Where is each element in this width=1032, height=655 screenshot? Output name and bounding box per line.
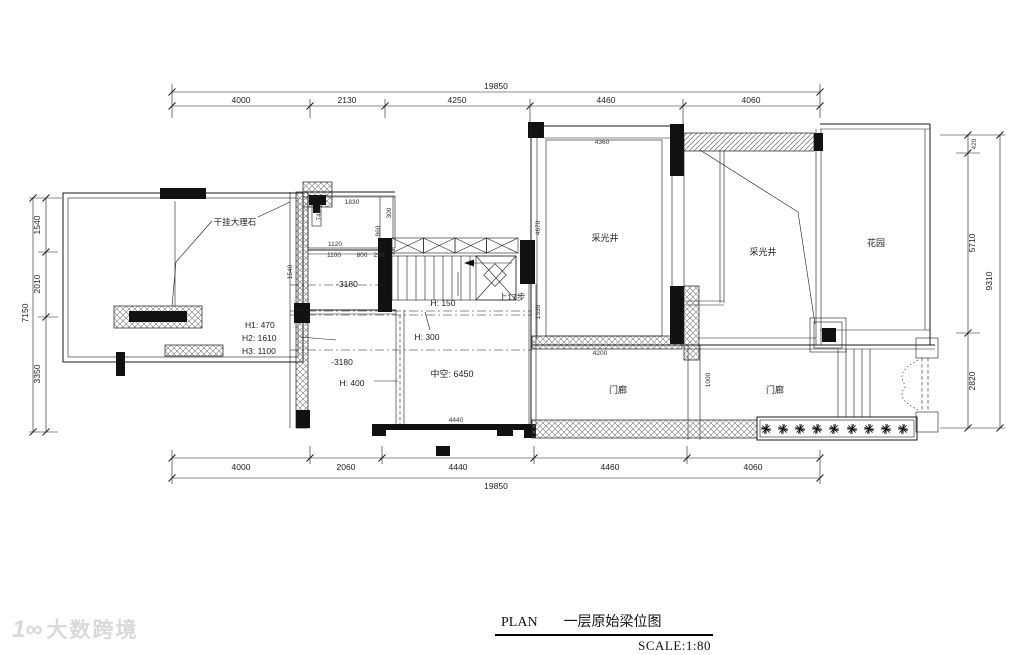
shrub-symbol <box>847 424 857 434</box>
dim-top-seg-5: 4060 <box>742 95 761 105</box>
small-dim-800: 800 <box>357 252 368 259</box>
dim-bottom-seg-5: 4060 <box>744 462 763 472</box>
room-label-porch-left: 门廊 <box>609 384 627 395</box>
drawing-sheet: 19850 4000 2130 4250 4460 4060 4000 2060… <box>0 0 1032 655</box>
shrub-symbol <box>795 424 805 434</box>
small-dim-300: 300 <box>386 207 393 218</box>
watermark-logo: 1∞ <box>12 616 42 644</box>
floor-plan-canvas: 19850 4000 2130 4250 4460 4060 4000 2060… <box>0 0 1032 655</box>
small-dim-1100: 1100 <box>327 252 341 259</box>
room-label-light-well-2: 采光井 <box>749 246 776 257</box>
small-dim-860: 860 <box>375 225 382 236</box>
watermark: 1∞ 大数跨境 <box>12 614 138 644</box>
dimension-chain-right: 420 5710 2820 9310 <box>940 132 1005 432</box>
annotation-beam-h300: H: 300 <box>414 332 439 342</box>
dim-right-total: 9310 <box>984 271 994 290</box>
dim-bottom-seg-1: 4000 <box>232 462 251 472</box>
small-dim-1540: 1540 <box>287 264 294 279</box>
dim-bottom-total: 19850 <box>484 481 508 491</box>
annotation-level-lower: -3180 <box>331 357 353 367</box>
dim-bottom-seg-3: 4440 <box>449 462 468 472</box>
small-dim-4360: 4360 <box>595 139 610 146</box>
room-label-garden: 花园 <box>867 237 885 248</box>
annotation-marble: 干挂大理石 <box>214 217 257 227</box>
annotation-h3: H3: 1100 <box>242 346 276 356</box>
small-dim-740: 740 <box>316 209 323 220</box>
drawing-name: 一层原始梁位图 <box>564 611 662 631</box>
small-dim-4440: 4440 <box>449 417 464 424</box>
dimension-chain-top: 19850 4000 2130 4250 4460 4060 <box>169 81 824 124</box>
small-dim-1000: 1000 <box>705 372 712 387</box>
annotation-level-upper: -3180 <box>336 279 358 289</box>
small-dim-1330: 1330 <box>535 304 542 319</box>
dim-top-seg-2: 2130 <box>338 95 357 105</box>
dim-left-seg-1: 1540 <box>32 215 42 234</box>
title-block: PLAN 一层原始梁位图 SCALE:1:80 <box>495 611 713 654</box>
dim-left-seg-2: 2010 <box>32 274 42 293</box>
dim-top-seg-1: 4000 <box>232 95 251 105</box>
shrub-symbol <box>864 424 874 434</box>
drawing-title: PLAN 一层原始梁位图 <box>495 611 713 636</box>
annotation-beam-h150: H: 150 <box>430 298 455 308</box>
dim-top-total: 19850 <box>484 81 508 91</box>
dimension-chain-left: 1540 2010 3350 7150 <box>20 195 62 436</box>
dim-left-seg-3: 3350 <box>32 364 42 383</box>
shrub-symbol <box>812 424 822 434</box>
shrub-symbol <box>881 424 891 434</box>
drawing-scale: SCALE:1:80 <box>495 636 713 654</box>
room-label-light-well-1: 采光井 <box>591 232 618 243</box>
dim-right-seg-2: 5710 <box>967 233 977 252</box>
small-dim-1120: 1120 <box>328 241 342 248</box>
small-dim-230: 230 <box>374 252 385 259</box>
dim-top-seg-4: 4460 <box>597 95 616 105</box>
center-core-walls <box>290 192 532 428</box>
dimension-chain-bottom: 4000 2060 4440 4460 4060 19850 <box>169 446 824 491</box>
shrub-symbol <box>761 424 771 434</box>
annotation-beam-h400: H: 400 <box>339 378 364 388</box>
dim-left-total: 7150 <box>20 303 30 322</box>
shrub-symbol <box>829 424 839 434</box>
room-label-porch-right: 门廊 <box>766 384 784 395</box>
watermark-brand: 大数跨境 <box>46 614 138 644</box>
annotation-h1: H1: 470 <box>245 320 275 330</box>
shrub-symbol <box>898 424 908 434</box>
dim-right-seg-3: 2820 <box>967 371 977 390</box>
shrub-symbol <box>778 424 788 434</box>
dim-bottom-seg-4: 4460 <box>601 462 620 472</box>
room-label-void: 中空: 6450 <box>430 368 473 379</box>
annotation-stairs-up: 上17步 <box>499 292 525 302</box>
plan-label: PLAN <box>501 615 538 631</box>
small-dim-4670: 4670 <box>535 220 542 235</box>
annotation-h2: H2: 1610 <box>242 333 277 343</box>
small-dim-4200: 4200 <box>593 350 608 357</box>
dim-right-seg-1: 420 <box>971 138 978 149</box>
dim-bottom-seg-2: 2060 <box>337 462 356 472</box>
small-dim-1830: 1830 <box>345 199 360 206</box>
dim-top-seg-3: 4250 <box>448 95 467 105</box>
